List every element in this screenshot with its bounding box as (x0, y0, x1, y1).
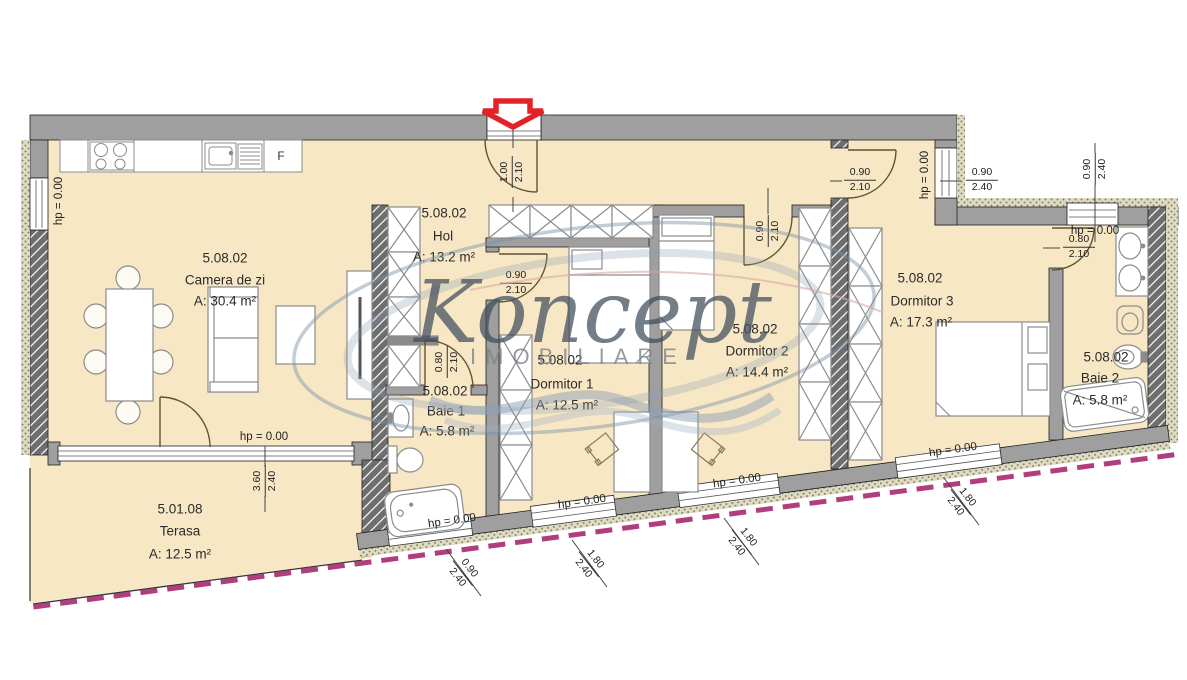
dormitor2-bed (659, 215, 714, 330)
baie1-bathtub-icon (383, 483, 465, 538)
dormitor3-wardrobe (849, 228, 882, 460)
room-hol-name: Hol (433, 229, 453, 244)
dim-entrance-door: 1.002.10 (499, 156, 526, 188)
baie1-toilet-icon (388, 446, 423, 473)
room-dormitor3-code: 5.08.02 (897, 271, 942, 286)
room-baie1-code: 5.08.02 (422, 384, 467, 399)
tv-unit (347, 271, 372, 399)
floor-plan: Koncept IMOBILIARE 5.08.02 Camera de zi … (0, 0, 1187, 680)
room-camera-de-zi-code: 5.08.02 (202, 251, 247, 266)
room-baie2-area: A: 5.8 m² (1073, 393, 1128, 408)
room-dormitor3-name: Dormitor 3 (890, 294, 953, 309)
dim-dormitor3-door: 0.902.10 (844, 167, 876, 194)
dim-hol-window: 0.902.40 (966, 167, 998, 194)
dim-dormitor2-door: 0.902.10 (755, 215, 782, 247)
dormitor2-desk (662, 412, 698, 492)
kitchen-counter (60, 140, 302, 172)
dormitor2-wardrobe (799, 208, 831, 440)
dormitor1-bed (569, 247, 650, 363)
baie1-sink-icon (388, 399, 413, 437)
coffee-table (276, 306, 315, 364)
fridge-label: F (277, 149, 284, 163)
dormitor1-wardrobe (500, 335, 532, 500)
corridor-wardrobe (489, 205, 653, 238)
room-baie2-code: 5.08.02 (1083, 350, 1128, 365)
dim-baie1-door: 0.802.10 (434, 346, 461, 378)
room-dormitor2-name: Dormitor 2 (725, 344, 788, 359)
room-terasa-code: 5.01.08 (157, 502, 202, 517)
room-dormitor2-code: 5.08.02 (732, 322, 777, 337)
room-dormitor2-area: A: 14.4 m² (726, 365, 788, 380)
room-dormitor3-area: A: 17.3 m² (890, 315, 952, 330)
room-baie1-area: A: 5.8 m² (420, 424, 475, 439)
hp-level-terasa: hp = 0.00 (240, 431, 288, 443)
room-terasa-area: A: 12.5 m² (149, 547, 211, 562)
room-hol-code: 5.08.02 (421, 206, 466, 221)
room-dormitor1-area: A: 12.5 m² (536, 398, 598, 413)
room-baie1-name: Baie 1 (427, 404, 465, 419)
dim-dormitor1-door: 0.902.10 (500, 270, 532, 297)
room-terasa-name: Terasa (160, 524, 201, 539)
dim-baie2-door: 0.802.10 (1063, 234, 1095, 261)
dormitor1-desk (614, 412, 650, 492)
room-camera-de-zi-area: A: 30.4 m² (194, 294, 256, 309)
room-baie2-name: Baie 2 (1081, 371, 1119, 386)
room-hol-area: A: 13.2 m² (413, 250, 475, 265)
room-dormitor1-code: 5.08.02 (537, 353, 582, 368)
room-camera-de-zi-name: Camera de zi (185, 273, 265, 288)
dim-terasa-window: 3.602.40 (252, 465, 279, 497)
dim-baie2-window: 0.902.40 (1082, 153, 1109, 185)
baie2-sinks-icon (1116, 227, 1148, 296)
dormitor3-bed (936, 322, 1050, 416)
hp-level-left-window: hp = 0.00 (53, 177, 65, 225)
room-dormitor1-name: Dormitor 1 (530, 377, 593, 392)
hp-level-hol-window: hp = 0.00 (919, 151, 931, 199)
